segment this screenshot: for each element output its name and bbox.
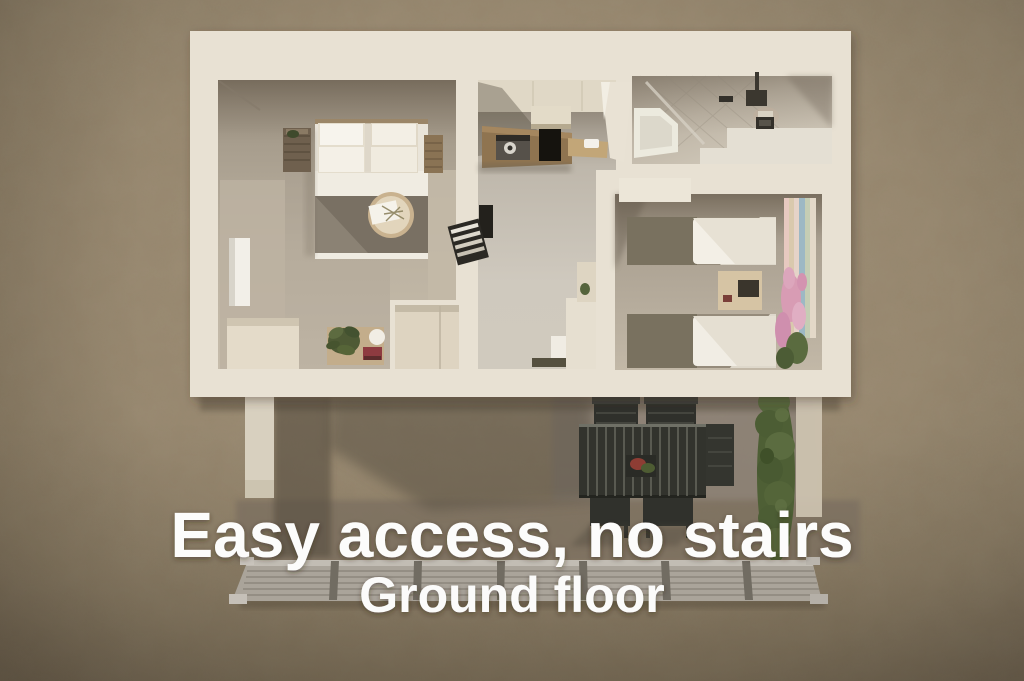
svg-text:Easy access, no stairs: Easy access, no stairs (170, 499, 853, 571)
svg-text:Ground floor: Ground floor (359, 567, 665, 623)
